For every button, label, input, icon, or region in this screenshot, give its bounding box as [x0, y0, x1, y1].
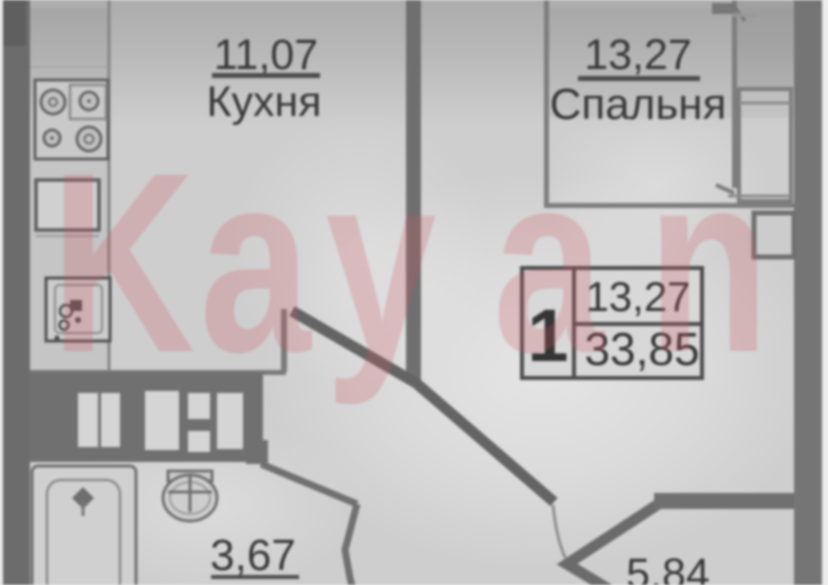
svg-text:Kayan: Kayan [51, 119, 770, 406]
